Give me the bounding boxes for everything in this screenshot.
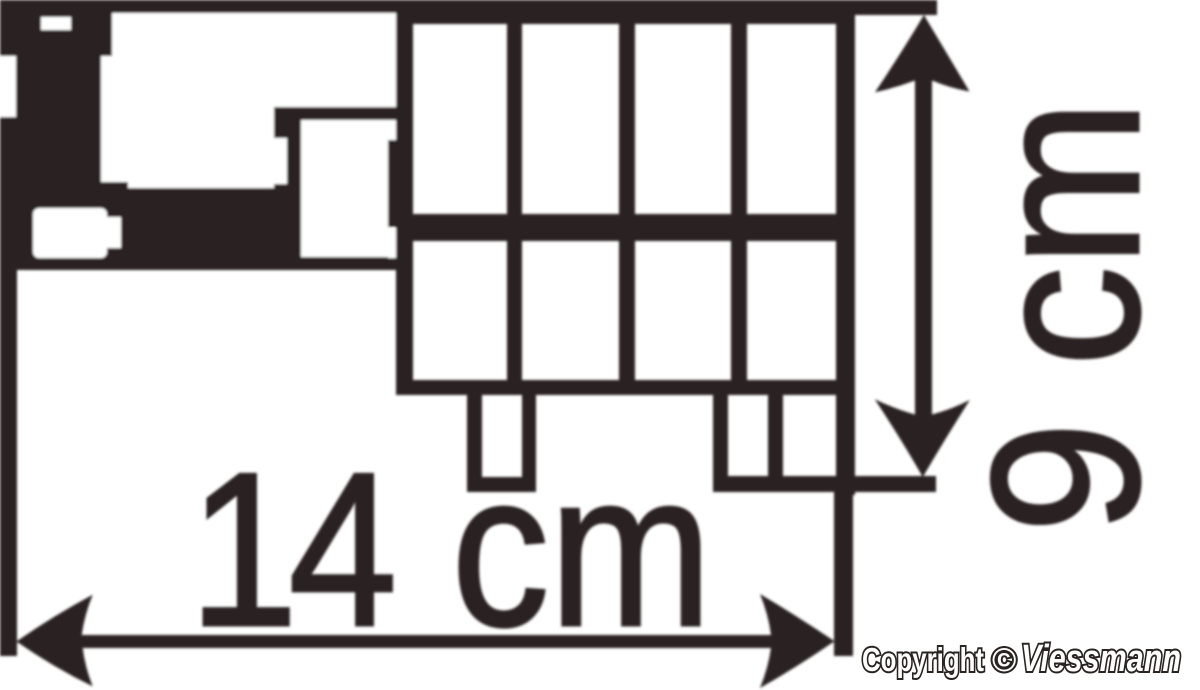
svg-text:4 cm: 4 cm [289,428,712,672]
svg-text:Copyright: Copyright [862,641,984,678]
svg-text:©: © [992,641,1016,678]
svg-text:1: 1 [189,428,298,672]
svg-text:9 cm: 9 cm [948,100,1183,533]
svg-text:Viessmann: Viessmann [1021,638,1181,680]
